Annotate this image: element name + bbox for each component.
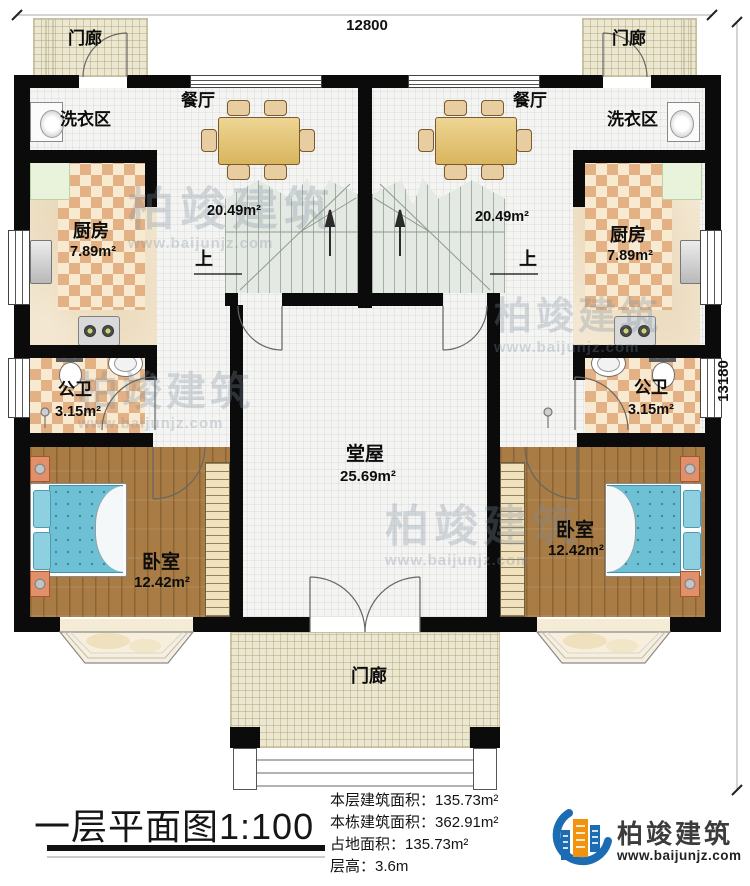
- info-row: 层高：3.6m: [330, 856, 498, 878]
- stairs-up-label-right: 上: [519, 250, 537, 268]
- room-label-dining-left: 餐厅: [181, 92, 215, 109]
- room-label-kitchen-left: 厨房: [73, 222, 109, 240]
- room-area-dining-left: 20.49m²: [207, 204, 261, 219]
- logo-mark-icon: [543, 806, 613, 876]
- info-value: 135.73m²: [435, 792, 498, 809]
- room-label-bath-left: 公卫: [58, 381, 92, 398]
- info-row: 本层建筑面积：135.73m²: [330, 790, 498, 812]
- room-area-hall: 25.69m²: [340, 469, 396, 484]
- title-underline-thin: [47, 856, 325, 858]
- room-label-hall: 堂屋: [346, 445, 384, 464]
- info-value: 135.73m²: [405, 836, 468, 853]
- bay-window-right: [537, 632, 670, 663]
- info-label: 本栋建筑面积：: [330, 814, 435, 831]
- room-area-bedroom-left: 12.42m²: [134, 575, 190, 590]
- room-label-bath-right: 公卫: [634, 379, 668, 396]
- logo-url: www.baijunjz.com: [617, 848, 742, 863]
- stair-up-arrows: [326, 210, 404, 256]
- room-label-porch-bottom: 门廊: [351, 667, 387, 685]
- room-area-bath-left: 3.15m²: [55, 405, 101, 420]
- info-label: 本层建筑面积：: [330, 792, 435, 809]
- shower-icon: [41, 408, 552, 428]
- room-area-dining-right: 20.49m²: [475, 210, 529, 225]
- company-logo: 柏竣建筑 www.baijunjz.com: [543, 806, 743, 880]
- stair-details: [225, 184, 505, 290]
- entry-steps: [257, 760, 473, 786]
- dimension-top: 12800: [307, 17, 427, 34]
- info-row: 占地面积：135.73m²: [330, 834, 498, 856]
- title-underline: [47, 845, 325, 851]
- dimension-right: 13180: [715, 336, 735, 426]
- info-label: 占地面积：: [330, 836, 405, 853]
- room-label-bedroom-right: 卧室: [556, 521, 594, 540]
- info-label: 层高：: [330, 858, 375, 875]
- room-area-kitchen-right: 7.89m²: [607, 249, 653, 264]
- logo-name: 柏竣建筑: [617, 814, 733, 851]
- room-area-bedroom-right: 12.42m²: [548, 543, 604, 558]
- floor-plan-page: 柏竣建筑 www.baijunjz.com 柏竣建筑 www.baijunjz.…: [0, 0, 750, 886]
- info-value: 362.91m²: [435, 814, 498, 831]
- room-label-laundry-right: 洗衣区: [607, 111, 658, 128]
- project-info: 本层建筑面积：135.73m² 本栋建筑面积：362.91m² 占地面积：135…: [330, 790, 498, 878]
- room-label-kitchen-right: 厨房: [610, 226, 646, 244]
- bay-window-left: [60, 632, 193, 663]
- info-value: 3.6m: [375, 858, 408, 875]
- room-label-porch-top-right: 门廊: [612, 30, 646, 47]
- info-row: 本栋建筑面积：362.91m²: [330, 812, 498, 834]
- stairs-up-label-left: 上: [195, 250, 213, 268]
- room-area-bath-right: 3.15m²: [628, 403, 674, 418]
- room-label-laundry-left: 洗衣区: [60, 111, 111, 128]
- room-label-dining-right: 餐厅: [513, 92, 547, 109]
- room-label-porch-top-left: 门廊: [68, 30, 102, 47]
- room-area-kitchen-left: 7.89m²: [70, 245, 116, 260]
- room-label-bedroom-left: 卧室: [142, 553, 180, 572]
- plan-annotations: [0, 0, 750, 886]
